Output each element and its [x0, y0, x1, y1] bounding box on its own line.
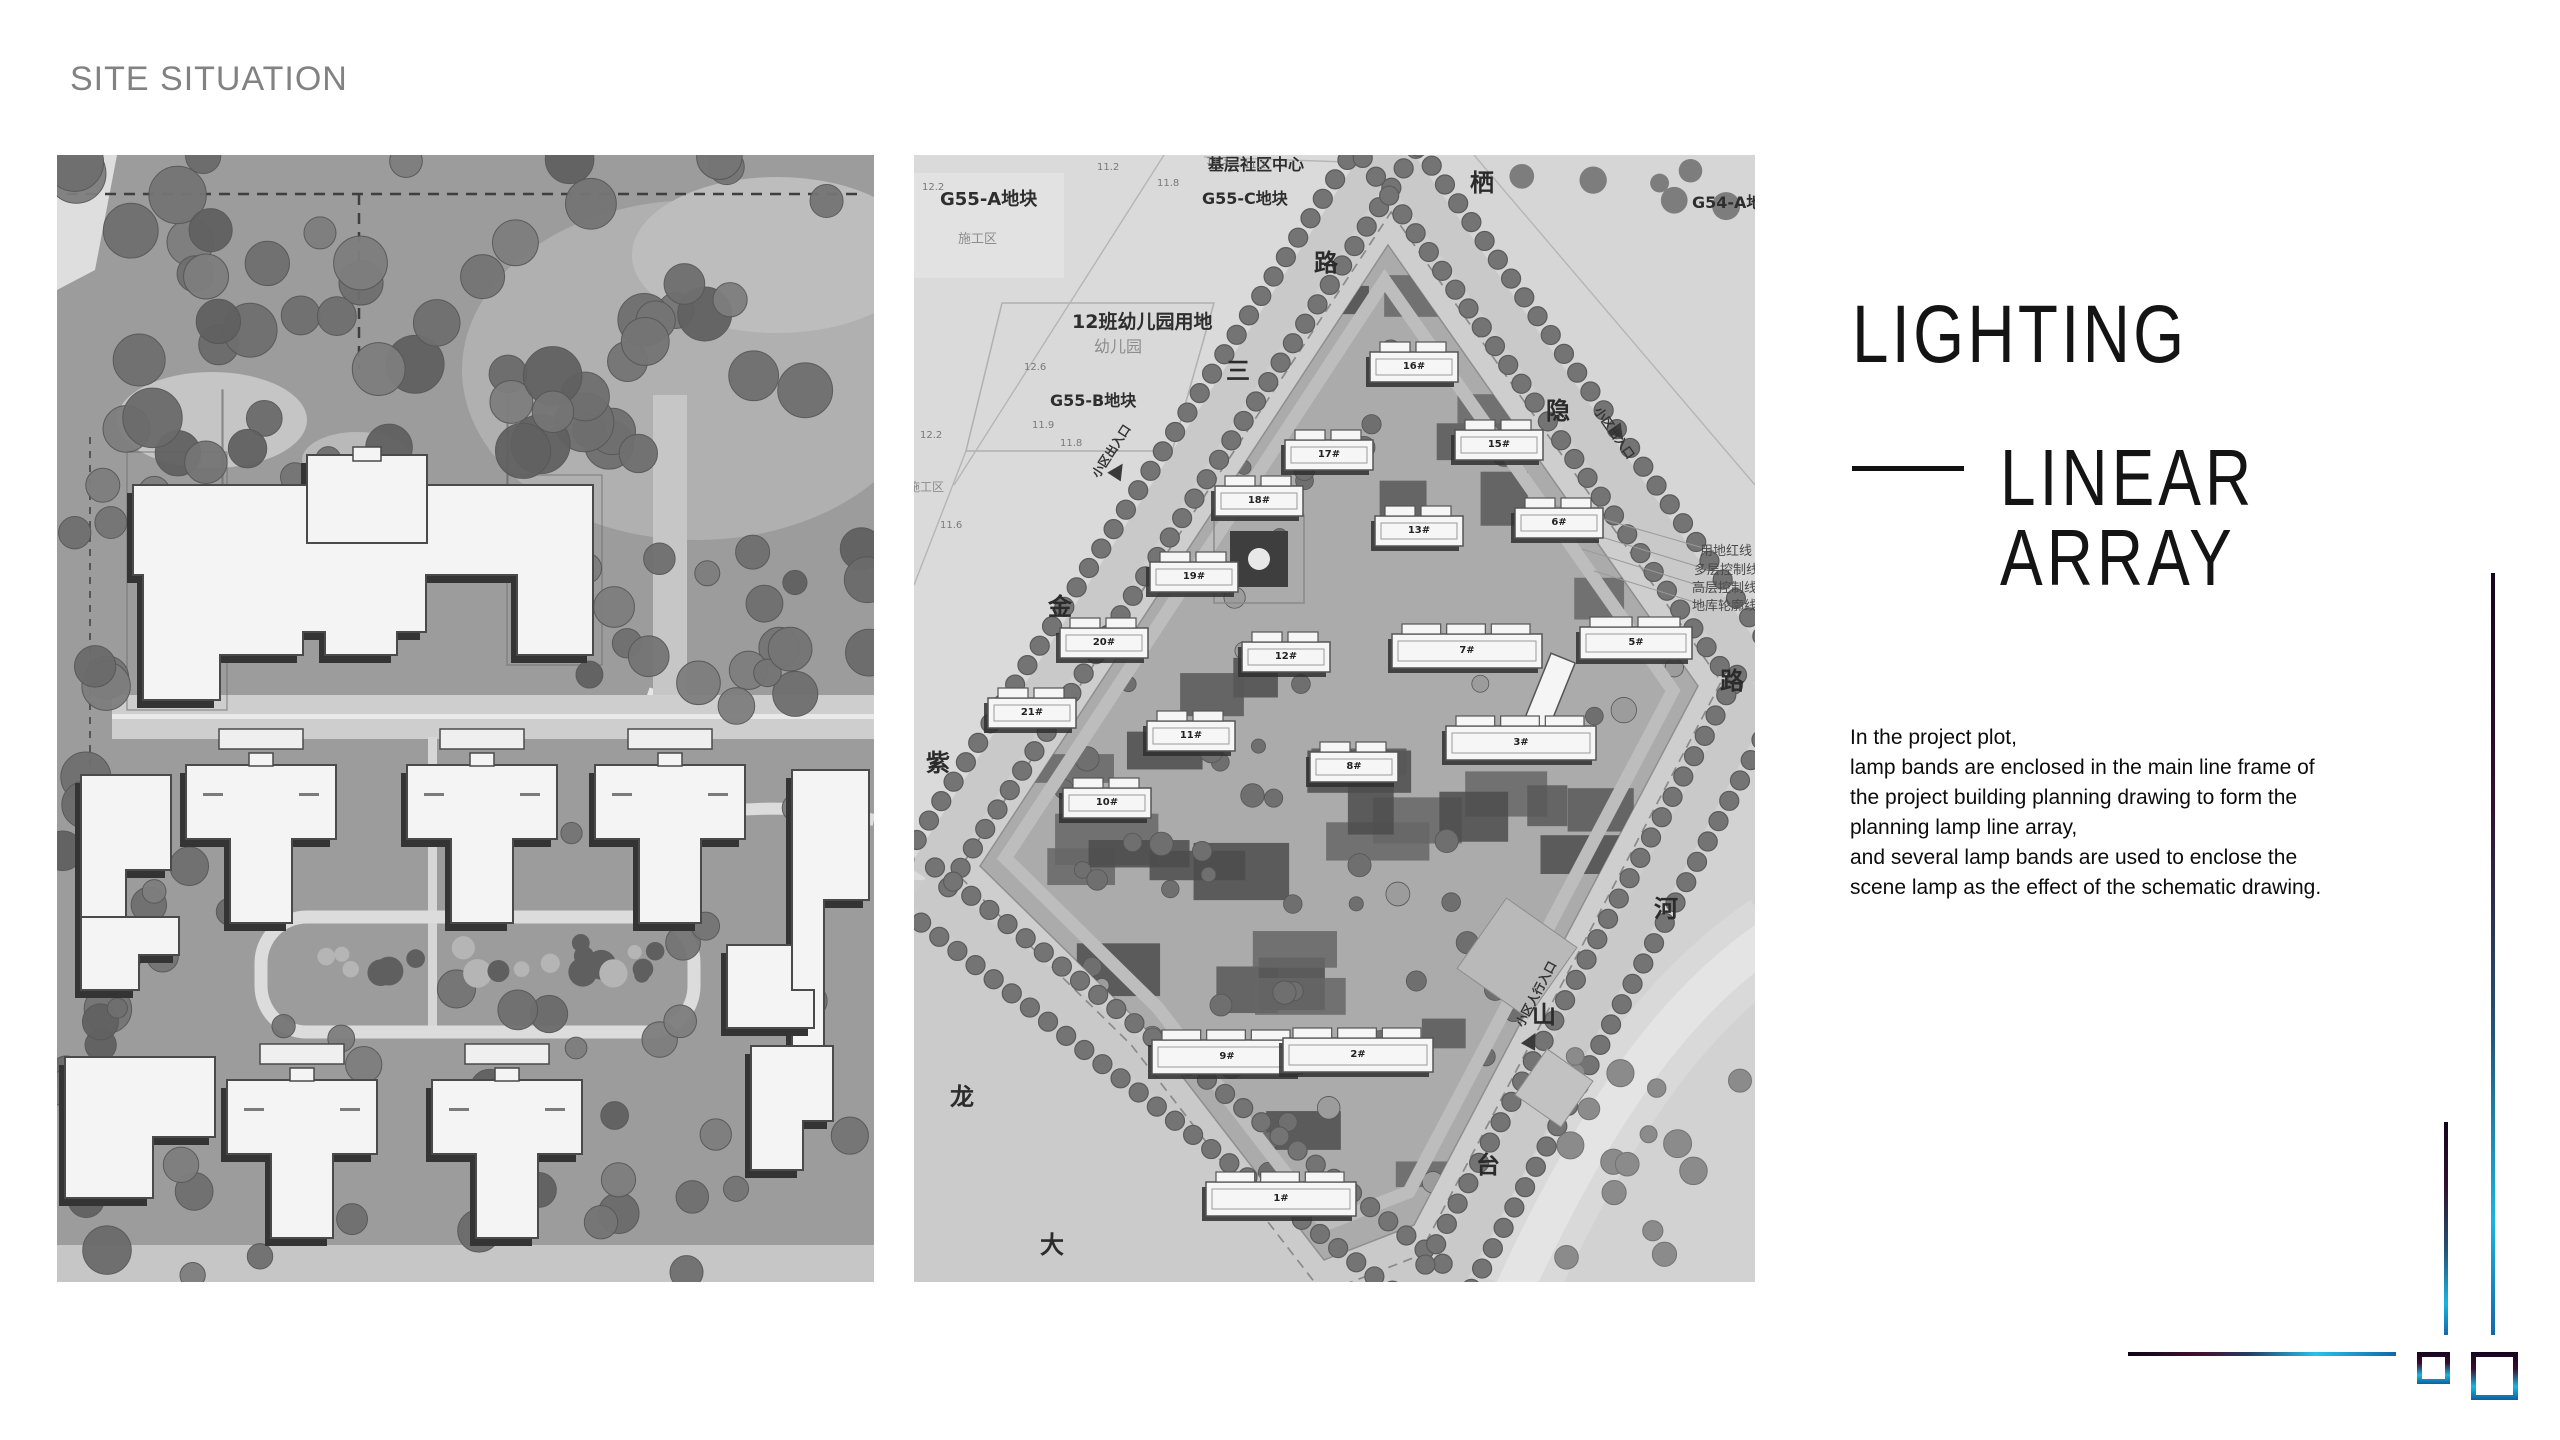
decor-square-large	[2471, 1352, 2518, 1400]
panel-title: LIGHTING	[1852, 294, 2187, 376]
decor-square-small	[2417, 1352, 2450, 1384]
body-line: lamp bands are enclosed in the main line…	[1850, 753, 2510, 783]
body-line: scene lamp as the effect of the schemati…	[1850, 873, 2510, 903]
decor-horizontal-line	[2128, 1352, 2396, 1356]
subtitle-dash	[1852, 466, 1964, 471]
site-plan-left-image	[57, 155, 874, 1282]
body-line: In the project plot,	[1850, 723, 2510, 753]
site-plan-right-image: 基层社区中心G55-A地块施工区G55-C地块G54-A地12班幼儿园用地幼儿园…	[914, 155, 1755, 1282]
body-line: and several lamp bands are used to enclo…	[1850, 843, 2510, 873]
page-title: SITE SITUATION	[70, 60, 348, 99]
body-paragraph: In the project plot,lamp bands are enclo…	[1850, 723, 2510, 903]
panel-subtitle: LINEAR ARRAY	[2000, 438, 2448, 598]
decor-vertical-line-long	[2491, 573, 2495, 1335]
body-line: the project building planning drawing to…	[1850, 783, 2510, 813]
body-line: planning lamp line array,	[1850, 813, 2510, 843]
decor-vertical-line-short	[2444, 1122, 2448, 1335]
site-plan-right-graphic	[914, 155, 1755, 1282]
site-plan-left-graphic	[57, 155, 874, 1282]
